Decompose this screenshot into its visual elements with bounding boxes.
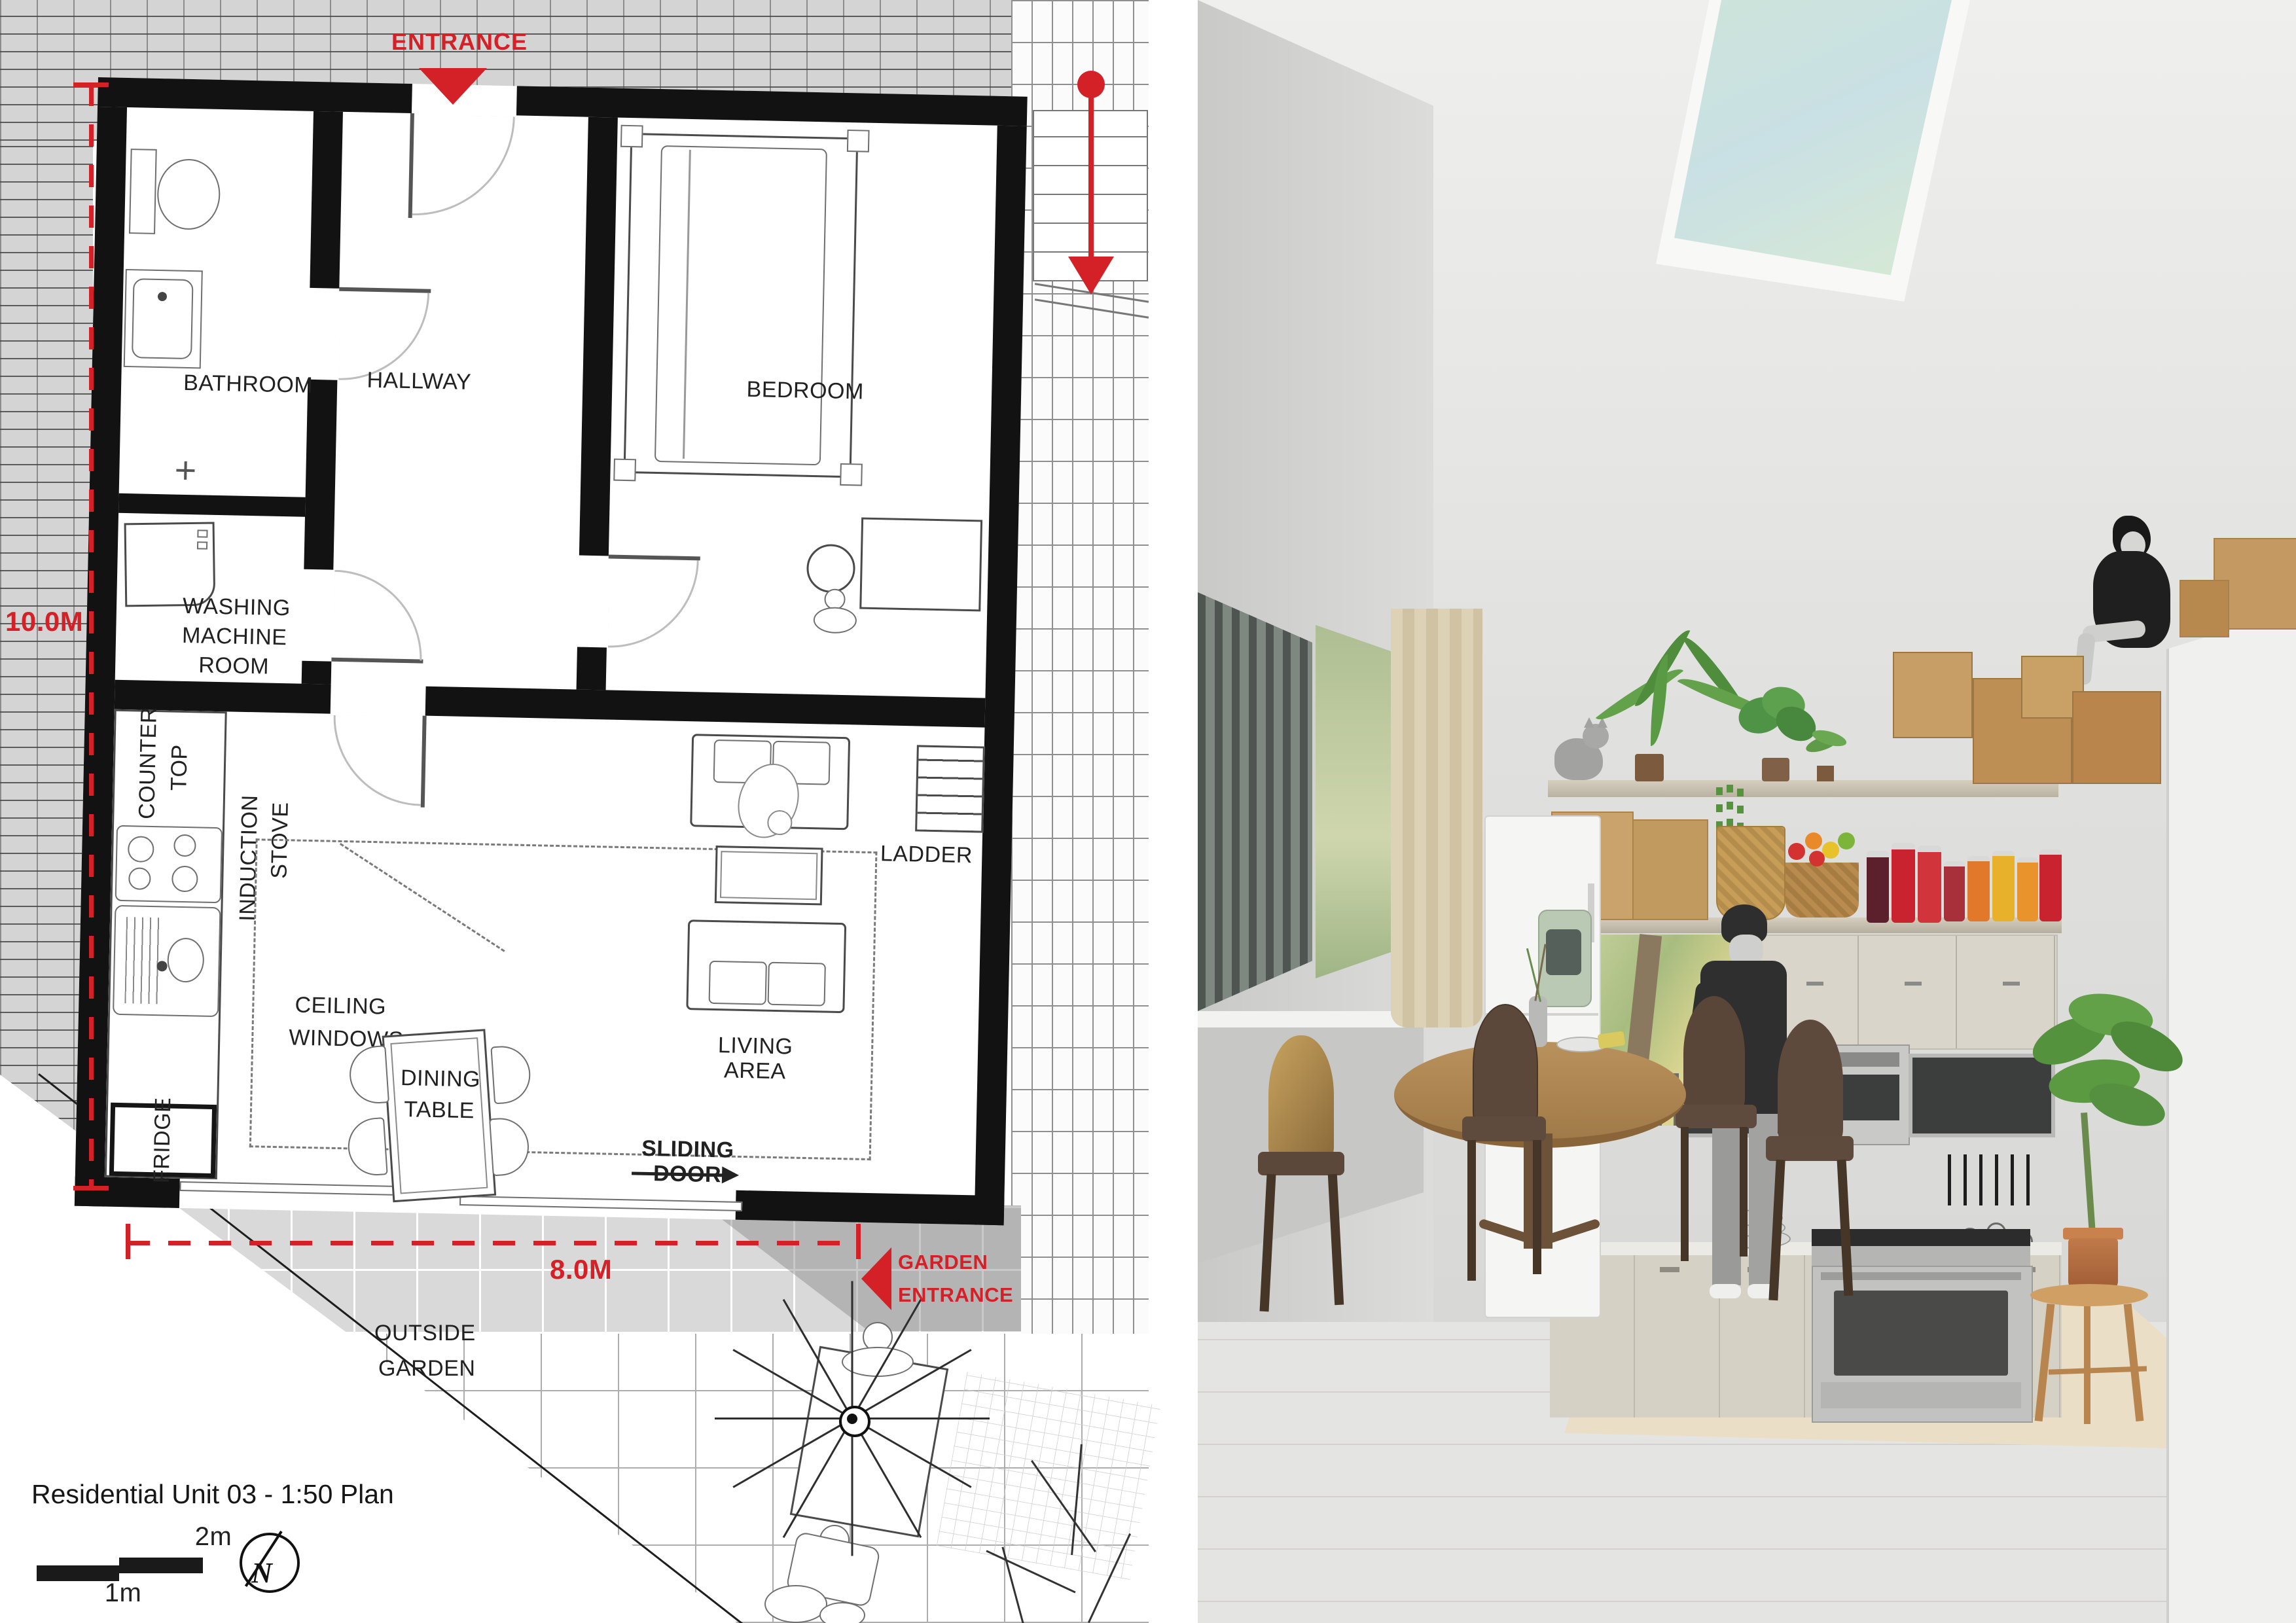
entrance-path-arrowhead xyxy=(1068,257,1114,294)
wall-bath-partition-b xyxy=(304,380,337,570)
coffee-table-inner xyxy=(720,851,817,900)
dining-chair-render-back xyxy=(1778,1020,1843,1144)
garden-entrance-label-2: ENTRANCE xyxy=(898,1284,1042,1307)
bath-sink-basin xyxy=(132,278,194,359)
preserve-jar xyxy=(2017,857,2038,921)
washer-knob xyxy=(197,529,207,537)
dim-line-horizontal xyxy=(128,1241,861,1245)
wall-bedroom-left-a xyxy=(579,117,618,556)
sink-drainboard xyxy=(124,917,163,1004)
cat-ear xyxy=(1584,717,1594,728)
dining-label-1: DINING xyxy=(401,1065,480,1092)
toilet-bowl xyxy=(156,158,221,230)
oven-controls xyxy=(1835,1052,1899,1067)
loft-wall xyxy=(2166,609,2296,1623)
fruit xyxy=(1838,832,1855,849)
man-shoe xyxy=(1710,1284,1741,1298)
preserve-jar xyxy=(1992,851,2015,921)
dim-cap xyxy=(73,1186,109,1190)
curtain xyxy=(1391,609,1482,1027)
sliding-door-arrow-head xyxy=(722,1166,740,1184)
stool-seat xyxy=(2030,1284,2148,1306)
fruit xyxy=(1788,843,1805,860)
wall-bath-partition-c xyxy=(302,661,332,685)
monstera-pot xyxy=(1762,758,1789,781)
plant-pot xyxy=(2068,1238,2118,1291)
wall-top-left xyxy=(98,77,412,113)
bedroom-door-swing xyxy=(608,559,699,650)
garden-entrance-label-1: GARDEN xyxy=(898,1251,1029,1274)
wall-bath-wash-divider xyxy=(118,493,306,517)
living-area-label: LIVING AREA xyxy=(692,1032,818,1084)
dim-line-vertical xyxy=(89,84,94,1190)
entrance-label: ENTRANCE xyxy=(391,29,516,55)
sofa-bottom-cushion xyxy=(709,961,767,1005)
dim-cap xyxy=(73,82,109,87)
counter-top-label-1: COUNTER xyxy=(134,714,162,819)
outside-garden-label-1: OUTSIDE xyxy=(374,1321,473,1346)
entrance-arrow xyxy=(419,68,487,105)
toilet-tank xyxy=(129,149,157,234)
dim-height-label: 10.0M xyxy=(5,606,84,637)
microwave xyxy=(1909,1054,2055,1137)
fruit xyxy=(1809,851,1825,866)
bedroom-label: BEDROOM xyxy=(746,377,865,404)
cardboard-box xyxy=(2072,691,2161,784)
wall-bath-partition-a xyxy=(310,111,343,289)
toaster-window xyxy=(1546,929,1581,975)
dining-chair-render-seat xyxy=(1766,1136,1854,1161)
dining-chair-render-back xyxy=(1473,1004,1538,1127)
garden-bush xyxy=(819,1602,865,1623)
dining-chair-render-seat xyxy=(1258,1152,1344,1175)
stool-leg xyxy=(2084,1306,2090,1424)
dining-chair-render-leg xyxy=(1533,1140,1541,1274)
north-letter: N xyxy=(247,1556,276,1590)
plan-title: Residential Unit 03 - 1:50 Plan xyxy=(31,1479,476,1510)
architecture-sheet: BATHROOM WASHING MACHINE ROOM HALLWAY BE… xyxy=(0,0,2296,1623)
dining-chair-render-seat xyxy=(1676,1105,1757,1128)
person-on-sofa-head xyxy=(767,810,793,836)
bedroom-person-shoulders xyxy=(813,607,857,633)
washing-door-swing xyxy=(332,570,423,661)
entrance-path-dot xyxy=(1077,71,1105,98)
wall-bedroom-left-b xyxy=(577,647,607,690)
dining-chair-render-back xyxy=(1268,1035,1334,1160)
living-door-swing xyxy=(332,715,423,806)
window-sill xyxy=(1198,1011,1424,1028)
preserve-jar xyxy=(1967,856,1990,921)
bedroom-chair xyxy=(806,544,856,594)
dining-chair-render-leg xyxy=(1467,1140,1476,1281)
garden-bush xyxy=(764,1585,827,1623)
wall-bottom-right xyxy=(736,1190,1005,1226)
dining-chair-render-seat xyxy=(1462,1116,1546,1141)
cabinet-handle xyxy=(1806,982,1823,986)
wall-main-right xyxy=(425,687,986,728)
bed-post xyxy=(620,125,643,148)
ladder-plan xyxy=(915,745,985,832)
preserve-jar xyxy=(1867,851,1889,923)
bed-post xyxy=(840,463,863,486)
entrance-path-stem xyxy=(1088,97,1094,259)
cardboard-box xyxy=(1893,652,1973,738)
washing-room-label-2: MACHINE xyxy=(182,623,287,650)
scale-bar-right xyxy=(119,1558,203,1573)
preserve-jar xyxy=(2039,849,2062,921)
washer-knob xyxy=(197,541,207,549)
garden-grid-bed xyxy=(937,1372,1160,1580)
dim-cap xyxy=(126,1224,130,1259)
palm-pot xyxy=(1635,754,1664,781)
ladder-label: LADDER xyxy=(874,841,979,868)
washing-room-label-3: ROOM xyxy=(181,652,287,679)
bedroom-desk xyxy=(859,518,982,612)
window-slatted xyxy=(1198,592,1312,1011)
scale-label-1m: 1m xyxy=(97,1578,149,1608)
unit-plan: BATHROOM WASHING MACHINE ROOM HALLWAY BE… xyxy=(75,77,1028,1225)
small-plant-pot xyxy=(1817,766,1834,781)
dim-width-label: 8.0M xyxy=(550,1254,628,1285)
scale-label-2m: 2m xyxy=(187,1522,240,1552)
stove-plan xyxy=(115,825,223,903)
fruit xyxy=(1805,832,1822,849)
floor-drain-cross xyxy=(184,461,187,480)
dining-chair-render-back xyxy=(1683,996,1745,1113)
bed-post xyxy=(613,459,636,482)
cork-box xyxy=(1632,819,1708,920)
dim-cap xyxy=(856,1224,861,1259)
fridge-label: FRIDGE xyxy=(149,1094,177,1186)
outside-garden-label-2: GARDEN xyxy=(378,1356,470,1381)
bed-mattress xyxy=(655,145,827,465)
floor-plan-panel: BATHROOM WASHING MACHINE ROOM HALLWAY BE… xyxy=(0,0,1149,1623)
dining-chair-render-leg xyxy=(1681,1127,1689,1261)
cabinet-handle xyxy=(2003,982,2020,986)
washing-room-label-1: WASHING xyxy=(183,594,288,620)
entrance-door-swing xyxy=(412,115,515,217)
dining-chair-render-leg xyxy=(1740,1127,1748,1257)
dining-label-2: TABLE xyxy=(400,1097,479,1124)
preserve-jar xyxy=(1944,861,1965,921)
range-oven-window xyxy=(1834,1291,2008,1376)
hallway-label: HALLWAY xyxy=(367,368,472,395)
sliding-door-panel xyxy=(459,1196,742,1211)
oven-window xyxy=(1835,1075,1899,1120)
ceiling-windows-label-1: CEILING xyxy=(295,993,387,1020)
tree-center-dot xyxy=(847,1414,857,1424)
garden-entrance-arrow xyxy=(861,1247,891,1310)
counter-top-label-2: TOP xyxy=(165,715,193,820)
bed-post xyxy=(847,130,870,152)
fruit-basket xyxy=(1785,863,1859,918)
preserve-jar xyxy=(1892,843,1915,923)
fruit xyxy=(1822,842,1839,859)
interior-rendering-panel xyxy=(1198,0,2296,1623)
cabinet-handle xyxy=(1905,982,1922,986)
preserve-jar xyxy=(1918,846,1941,923)
range-drawer xyxy=(1821,1382,2021,1408)
knife-rack xyxy=(1948,1154,2033,1205)
loft-box xyxy=(2179,580,2229,637)
drawer-handle xyxy=(1660,1267,1679,1272)
bathroom-label: BATHROOM xyxy=(183,370,308,398)
sofa-bottom-cushion xyxy=(768,962,826,1007)
man-jeans-leg xyxy=(1712,1114,1741,1285)
